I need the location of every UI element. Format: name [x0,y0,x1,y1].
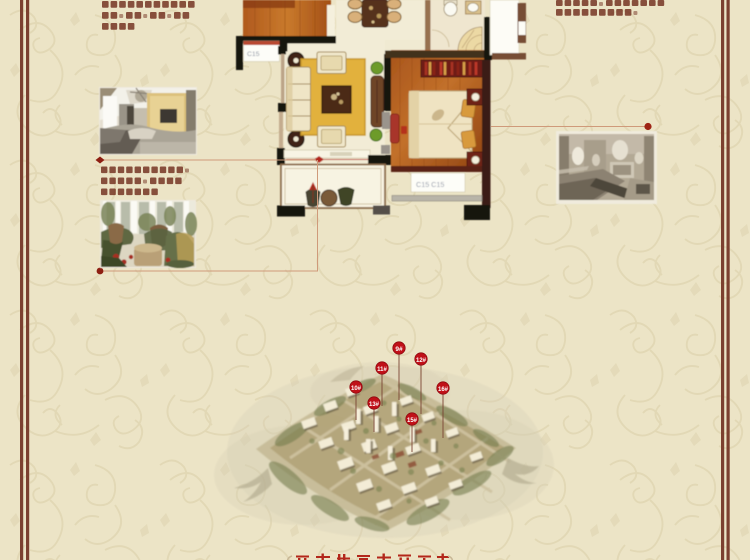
svg-text:13#: 13# [369,402,380,408]
svg-text:C15 C15: C15 C15 [416,180,444,189]
svg-text:15#: 15# [407,418,418,424]
svg-text:16#: 16# [438,387,449,393]
svg-text:C15: C15 [247,51,260,58]
svg-text:10#: 10# [351,386,362,392]
svg-text:12#: 12# [416,358,427,364]
svg-text:11#: 11# [377,367,387,373]
svg-text:9#: 9# [395,346,403,353]
